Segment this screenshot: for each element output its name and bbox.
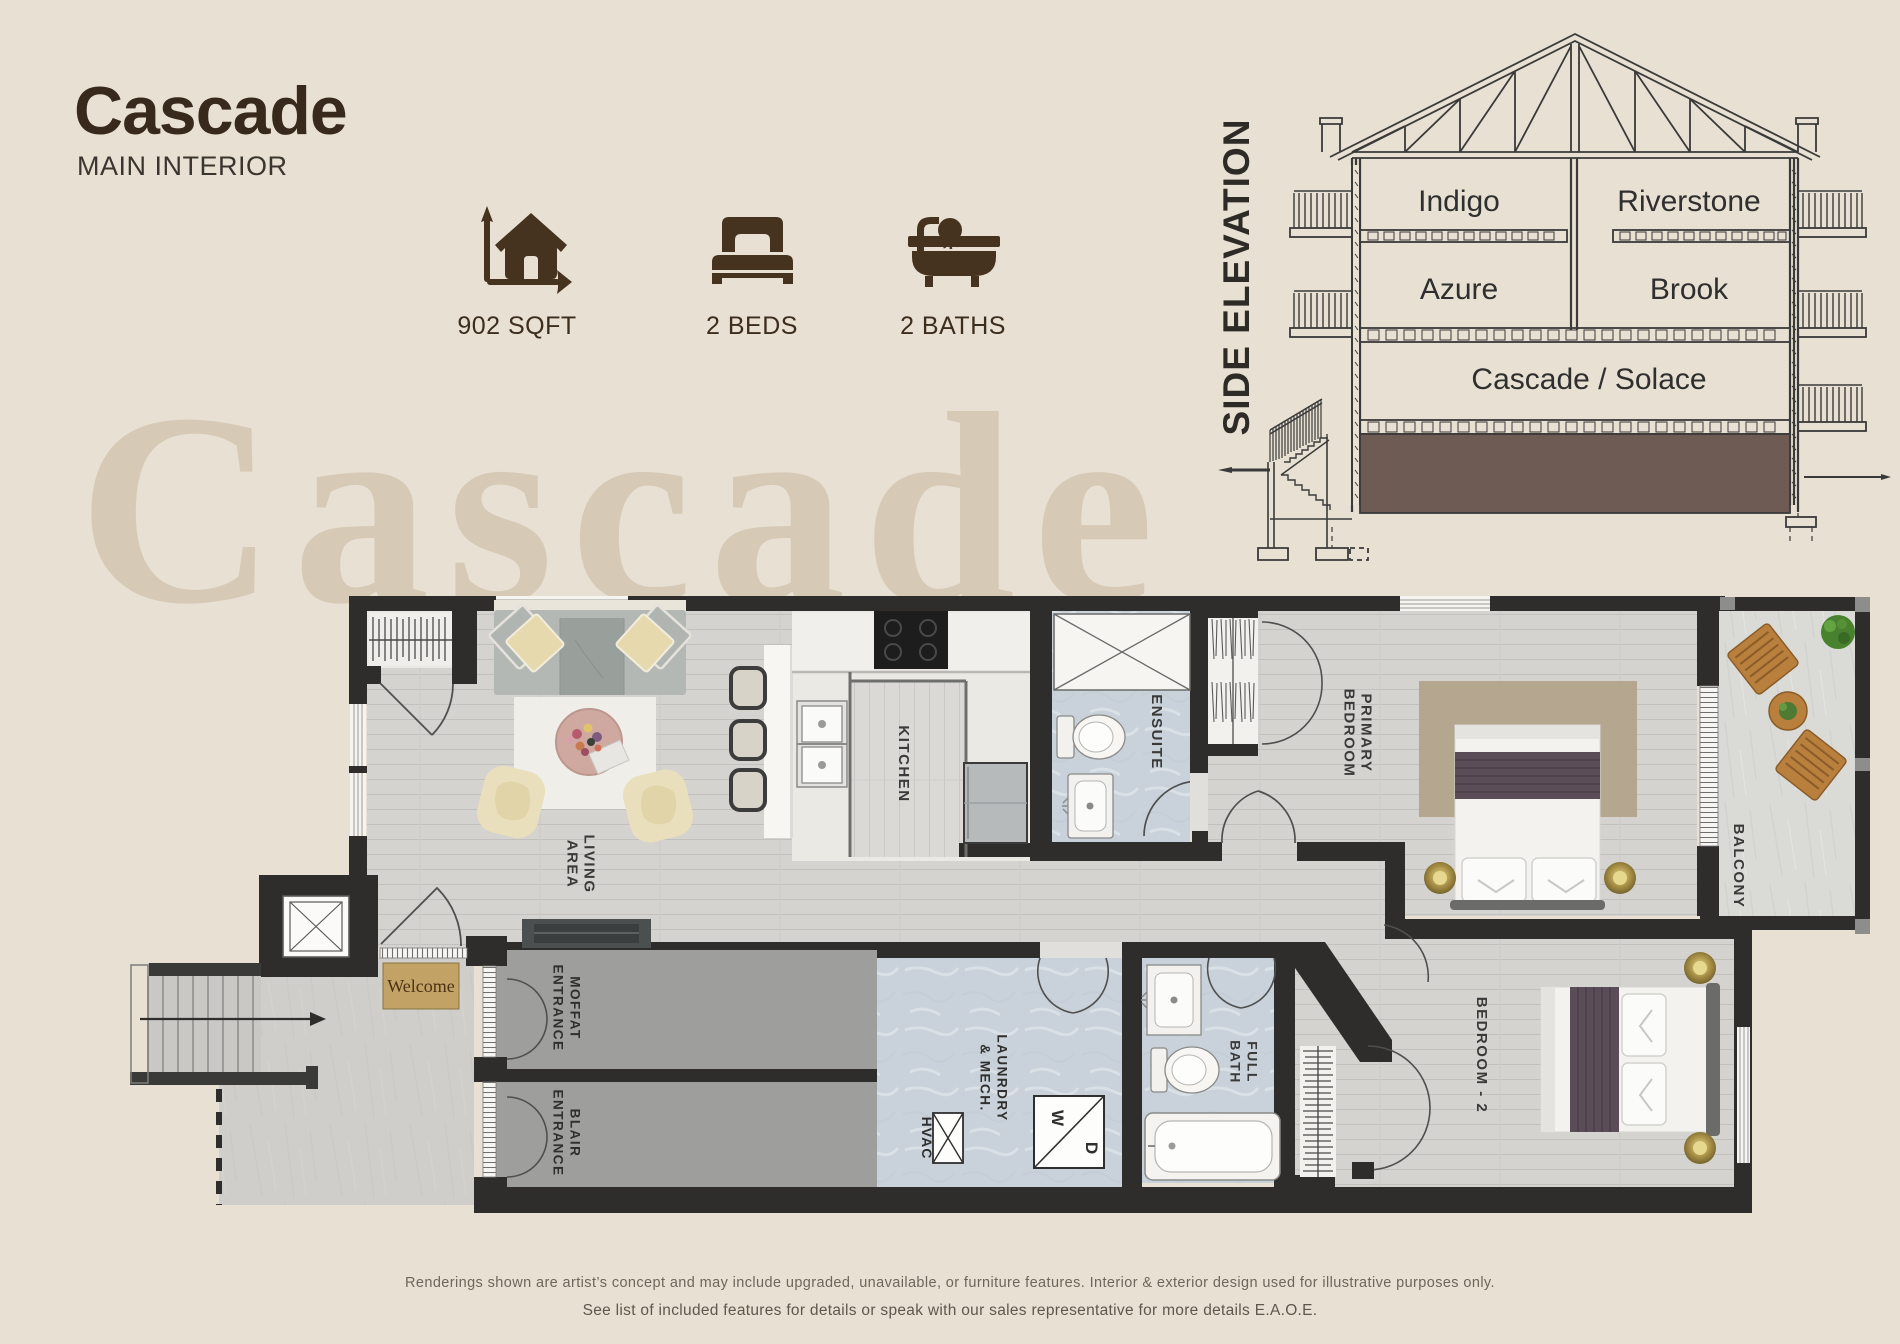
svg-text:MOFFAT: MOFFAT — [568, 976, 583, 1040]
svg-text:BATH: BATH — [1228, 1040, 1244, 1084]
svg-text:ENTRANCE: ENTRANCE — [551, 1089, 566, 1176]
svg-text:PRIMARY: PRIMARY — [1358, 693, 1375, 772]
svg-text:LAUNRDRY: LAUNRDRY — [995, 1034, 1010, 1121]
svg-text:KITCHEN: KITCHEN — [895, 725, 912, 802]
svg-text:ENSUITE: ENSUITE — [1148, 694, 1165, 770]
svg-text:BEDROOM - 2: BEDROOM - 2 — [1473, 997, 1490, 1114]
svg-text:Azure: Azure — [1420, 273, 1498, 306]
svg-text:SIDE ELEVATION: SIDE ELEVATION — [1216, 119, 1257, 436]
svg-text:Brook: Brook — [1650, 273, 1729, 306]
svg-text:D: D — [1082, 1142, 1101, 1154]
svg-text:AREA: AREA — [564, 840, 581, 889]
svg-text:BLAIR: BLAIR — [568, 1109, 583, 1158]
svg-text:Indigo: Indigo — [1418, 185, 1500, 218]
svg-text:ENTRANCE: ENTRANCE — [551, 964, 566, 1051]
svg-text:& MECH.: & MECH. — [978, 1044, 993, 1112]
svg-text:BALCONY: BALCONY — [1730, 824, 1747, 909]
svg-text:Cascade / Solace: Cascade / Solace — [1471, 363, 1706, 396]
svg-text:BEDROOM: BEDROOM — [1341, 689, 1358, 778]
svg-text:W: W — [1048, 1110, 1067, 1127]
svg-text:Welcome: Welcome — [387, 976, 455, 996]
svg-text:HVAC: HVAC — [919, 1117, 935, 1160]
svg-text:FULL: FULL — [1245, 1041, 1261, 1083]
svg-text:Riverstone: Riverstone — [1617, 185, 1760, 218]
svg-text:LIVING: LIVING — [581, 834, 598, 893]
